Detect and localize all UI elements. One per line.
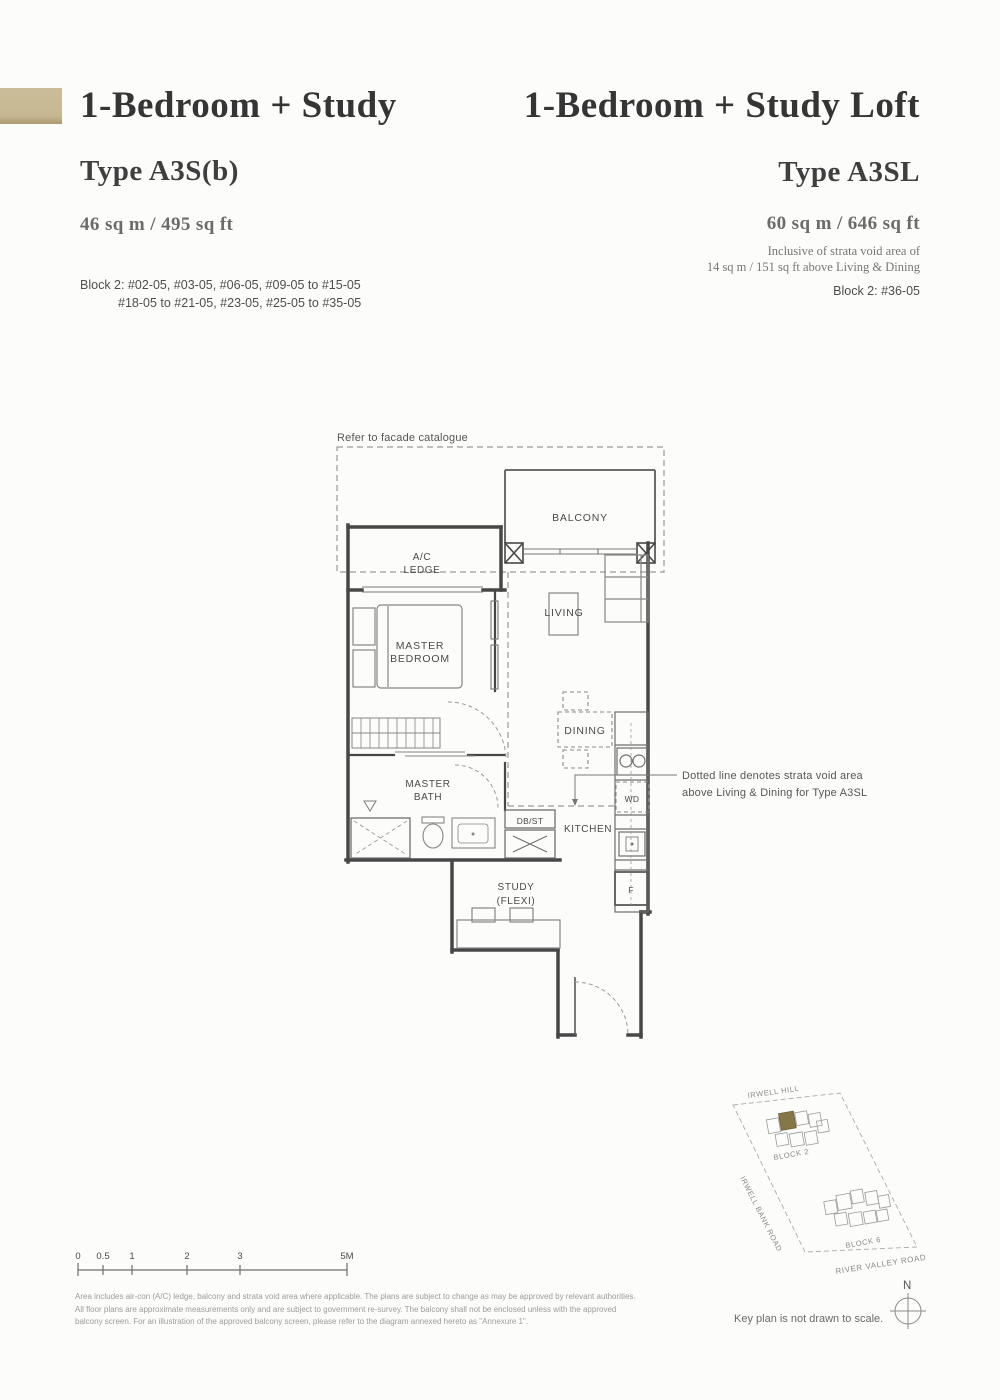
disclaimer-line1: Area includes air-con (A/C) ledge, balco… [75,1291,675,1304]
right-unit-type: Type A3SL [480,156,920,189]
left-unit-type: Type A3S(b) [80,155,500,188]
bath-door-swing [455,765,498,808]
highlighted-unit [778,1111,796,1130]
left-unit-header: 1-Bedroom + Study Type A3S(b) 46 sq m / … [80,84,500,312]
right-unit-title: 1-Bedroom + Study Loft [480,84,920,127]
facade-note-label: Refer to facade catalogue [337,432,468,444]
disclaimer-line2: All floor plans are approximate measurem… [75,1304,675,1317]
fridge-label: F [628,885,634,895]
bedroom-door-swing [448,702,506,760]
balcony-label: BALCONY [552,512,608,524]
scale-label-2: 2 [184,1251,189,1262]
road-irwell-hill-label: IRWELL HILL [747,1084,800,1100]
wd-label: WD [625,794,640,804]
floor-plan: Refer to facade catalogue [330,425,950,1045]
scale-bar: 0 0.5 1 2 3 5M [72,1248,382,1282]
compass-north-label: N [903,1280,911,1292]
interior-walls [348,592,505,810]
scale-label-1: 1 [129,1251,134,1262]
right-unit-blocks: Block 2: #36-05 [480,282,920,300]
master-bedroom-label-1: MASTER [396,640,445,652]
master-bath-label-2: BATH [414,792,442,803]
compass: N [890,1280,926,1329]
left-unit-blocks-line1: Block 2: #02-05, #03-05, #06-05, #09-05 … [80,276,500,294]
scale-label-0: 0 [75,1251,80,1262]
dining-label: DINING [564,725,606,737]
scale-label-05: 0.5 [96,1251,109,1262]
toilet [422,817,444,848]
scale-label-5m: 5M [340,1251,353,1262]
study-label-2: (FLEXI) [497,896,536,907]
sliding-door-track [395,752,475,756]
road-irwell-bank-label: IRWELL BANK ROAD [738,1175,784,1253]
doors [448,702,628,1035]
living-label: LIVING [544,607,583,619]
study-desk [457,908,560,948]
ac-ledge-label-1: A/C [413,552,431,563]
right-unit-header: 1-Bedroom + Study Loft Type A3SL 60 sq m… [480,84,920,300]
ac-ledge-label-2: LEDGE [404,565,441,576]
right-unit-inclusive-line2: 14 sq m / 151 sq ft above Living & Dinin… [480,259,920,275]
left-unit-title: 1-Bedroom + Study [80,84,500,127]
road-river-valley-label: RIVER VALLEY ROAD [835,1253,927,1276]
db-st-label: DB/ST [517,816,544,826]
balcony-columns [505,543,655,563]
floor-trap [364,801,376,811]
scale-label-3: 3 [237,1251,242,1262]
block6-footprint [823,1185,893,1231]
right-unit-inclusive-line1: Inclusive of strata void area of [480,243,920,259]
block6-label: BLOCK 6 [845,1235,882,1250]
study-label-1: STUDY [498,882,535,893]
block2-label: BLOCK 2 [773,1147,810,1162]
ac-ledge-window [362,587,483,592]
block2-footprint [766,1106,831,1152]
right-unit-area: 60 sq m / 646 sq ft [480,213,920,235]
kitchen-counter [615,712,649,912]
disclaimer-line3: balcony screen. For an illustration of t… [75,1316,675,1329]
keyplan-note: Key plan is not drawn to scale. [734,1313,883,1325]
annotation-line2: above Living & Dining for Type A3SL [682,787,867,799]
master-bath-fixtures [351,801,495,858]
right-unit-inclusive: Inclusive of strata void area of 14 sq m… [480,243,920,275]
balcony-sliding-door [523,549,637,554]
disclaimer: Area includes air-con (A/C) ledge, balco… [75,1291,675,1329]
left-unit-blocks: Block 2: #02-05, #03-05, #06-05, #09-05 … [80,276,500,312]
kitchen-label: KITCHEN [564,824,612,835]
wardrobe [352,718,440,748]
master-bath-label-1: MASTER [405,779,450,790]
nightstands [353,608,375,687]
master-bedroom-label-2: BEDROOM [390,653,450,665]
page-accent-tab [0,88,62,124]
annotation-line1: Dotted line denotes strata void area [682,770,864,782]
left-unit-blocks-line2: #18-05 to #21-05, #23-05, #25-05 to #35-… [80,294,500,312]
left-unit-area: 46 sq m / 495 sq ft [80,214,500,236]
entry-door-swing [575,982,628,1035]
key-plan: IRWELL HILL BLOCK 2 BLOCK 6 IRWELL BANK … [718,1068,968,1338]
site-boundary [733,1093,917,1252]
sofa [605,555,648,622]
